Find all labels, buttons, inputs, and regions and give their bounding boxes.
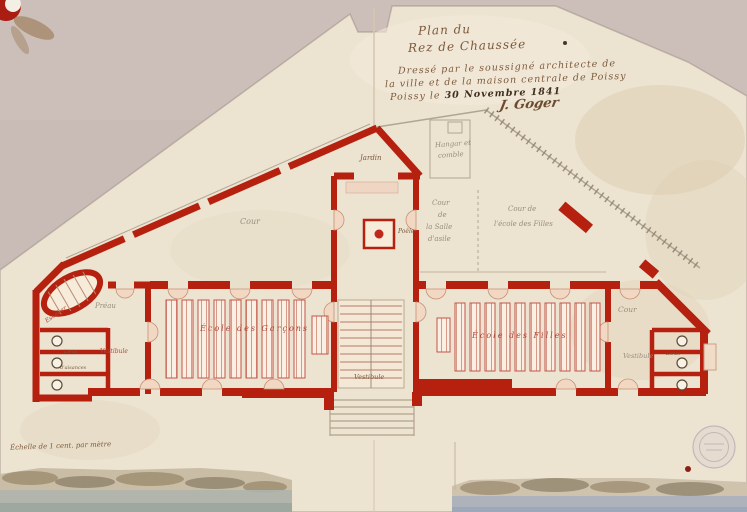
label-poele: Poêle <box>398 229 414 235</box>
label-cour-asile-1: Cour <box>432 200 449 207</box>
architect-signature: J. Goger <box>498 96 559 112</box>
label-cour-asile-3: la Salle <box>426 224 452 231</box>
label-cour-asile-2: de <box>438 212 447 219</box>
label-cour-right: Cour <box>618 306 637 314</box>
stove-symbol <box>364 220 394 248</box>
label-ecole-filles: École des Filles <box>472 332 568 340</box>
scanned-plan-photograph: Plan du Rez de Chaussée Dressé par le so… <box>0 0 747 512</box>
bottom-left-wash-strip <box>0 468 292 512</box>
label-vestibule-center: Vestibule <box>354 374 384 381</box>
label-gable-room: Jardin <box>360 155 382 162</box>
label-vestibule-right: Vestibule <box>623 353 653 360</box>
label-aisances-left: d'aisances <box>60 366 86 371</box>
right-bay <box>704 344 716 370</box>
label-cour-left: Cour <box>240 218 260 226</box>
date-prefix: Poissy le <box>390 90 445 103</box>
label-lieux-left: Lieux <box>64 350 78 355</box>
label-ecole-garcons: École des Garçons <box>200 325 309 333</box>
label-cour-filles-1: Cour de <box>508 206 536 213</box>
label-cour-asile-4: d'asile <box>428 236 451 243</box>
archive-stamp-icon <box>693 426 735 468</box>
plan-drawing <box>0 0 747 512</box>
label-lieux-right: Lieux <box>666 352 680 357</box>
label-cour-filles-2: l'école des Filles <box>494 221 553 228</box>
bench-rows-boys <box>166 300 328 378</box>
plan-title-line1: Plan du <box>418 23 471 37</box>
label-preau: Préau <box>95 303 116 310</box>
label-vestibule-left: Vestibule <box>100 349 128 355</box>
